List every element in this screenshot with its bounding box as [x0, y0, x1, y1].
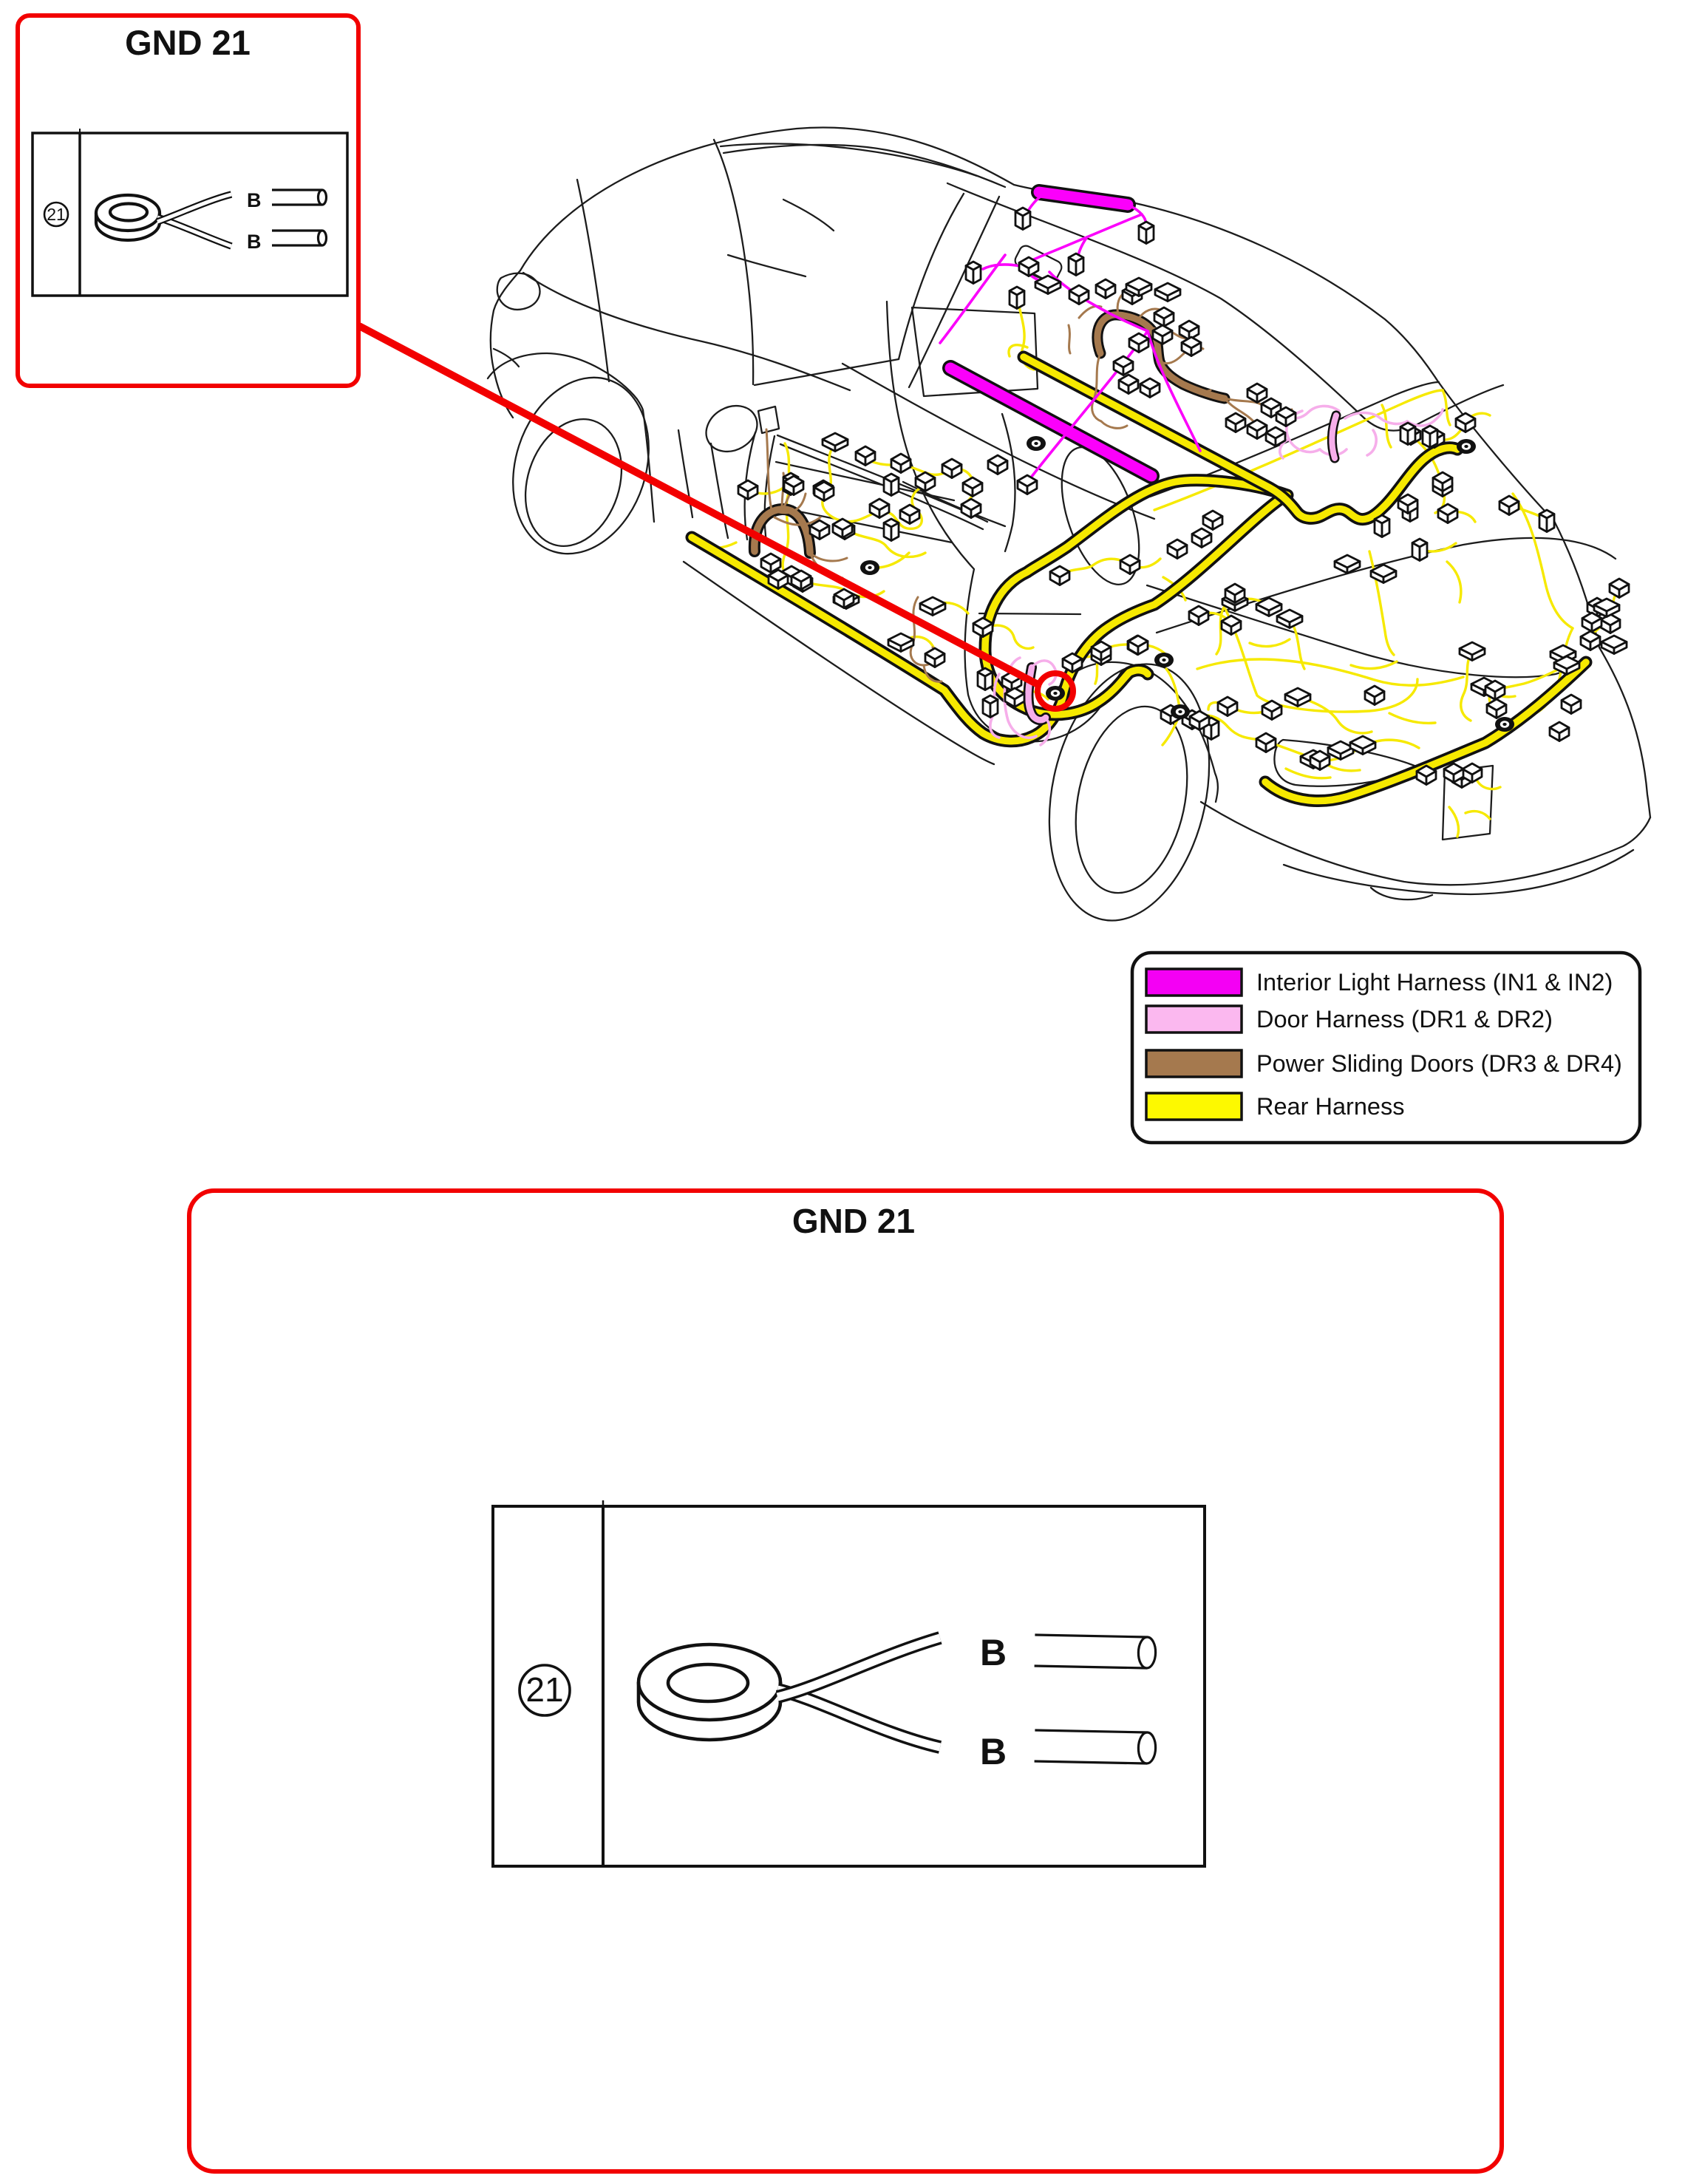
svg-text:Door Harness (DR1 & DR2): Door Harness (DR1 & DR2) — [1256, 1006, 1553, 1033]
svg-text:GND 21: GND 21 — [792, 1202, 915, 1240]
svg-text:21: 21 — [47, 205, 66, 224]
svg-text:21: 21 — [525, 1670, 563, 1709]
svg-text:B: B — [980, 1632, 1007, 1673]
svg-text:B: B — [980, 1731, 1007, 1772]
svg-text:Interior Light Harness (IN1 &: Interior Light Harness (IN1 & IN2) — [1256, 969, 1613, 996]
svg-text:Rear Harness: Rear Harness — [1256, 1093, 1405, 1120]
svg-text:B: B — [247, 231, 262, 253]
svg-text:GND 21: GND 21 — [125, 23, 251, 62]
svg-text:B: B — [247, 189, 262, 211]
svg-text:Power Sliding Doors (DR3 & DR4: Power Sliding Doors (DR3 & DR4) — [1256, 1050, 1622, 1077]
